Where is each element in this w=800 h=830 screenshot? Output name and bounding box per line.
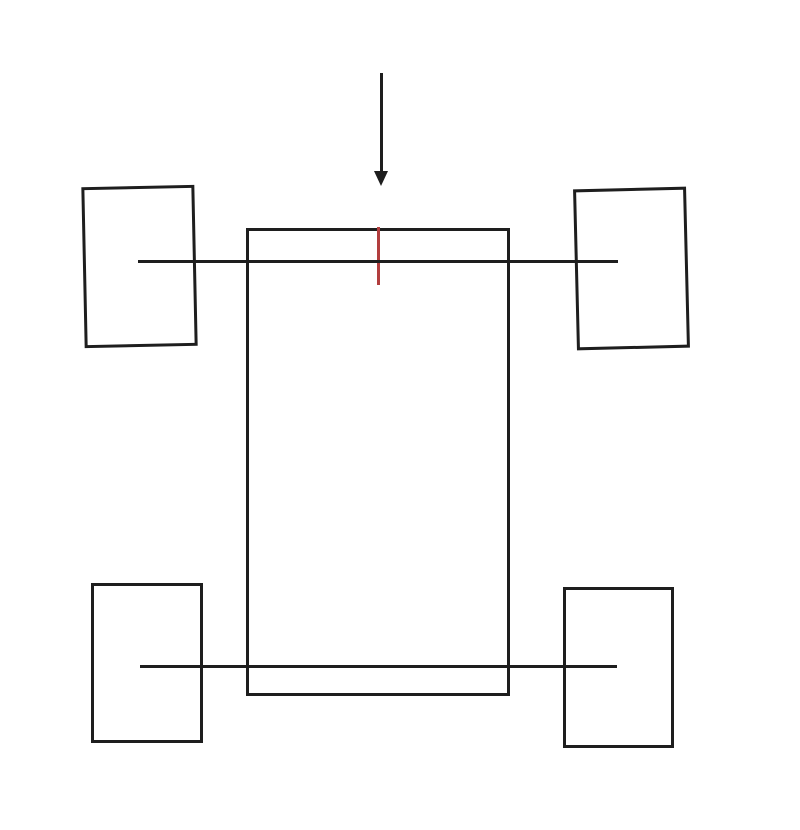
force-arrow-head [374, 171, 388, 186]
red-offset-mark [377, 227, 380, 285]
force-arrow-shaft [380, 73, 383, 173]
wheel-front-left [81, 185, 197, 348]
wheel-front-right [573, 187, 690, 351]
front-axle [138, 260, 618, 263]
wheel-rear-left [91, 583, 203, 743]
rear-axle [140, 665, 617, 668]
diagram-canvas [0, 0, 800, 830]
chassis-body [246, 228, 510, 696]
wheel-rear-right [563, 587, 674, 748]
